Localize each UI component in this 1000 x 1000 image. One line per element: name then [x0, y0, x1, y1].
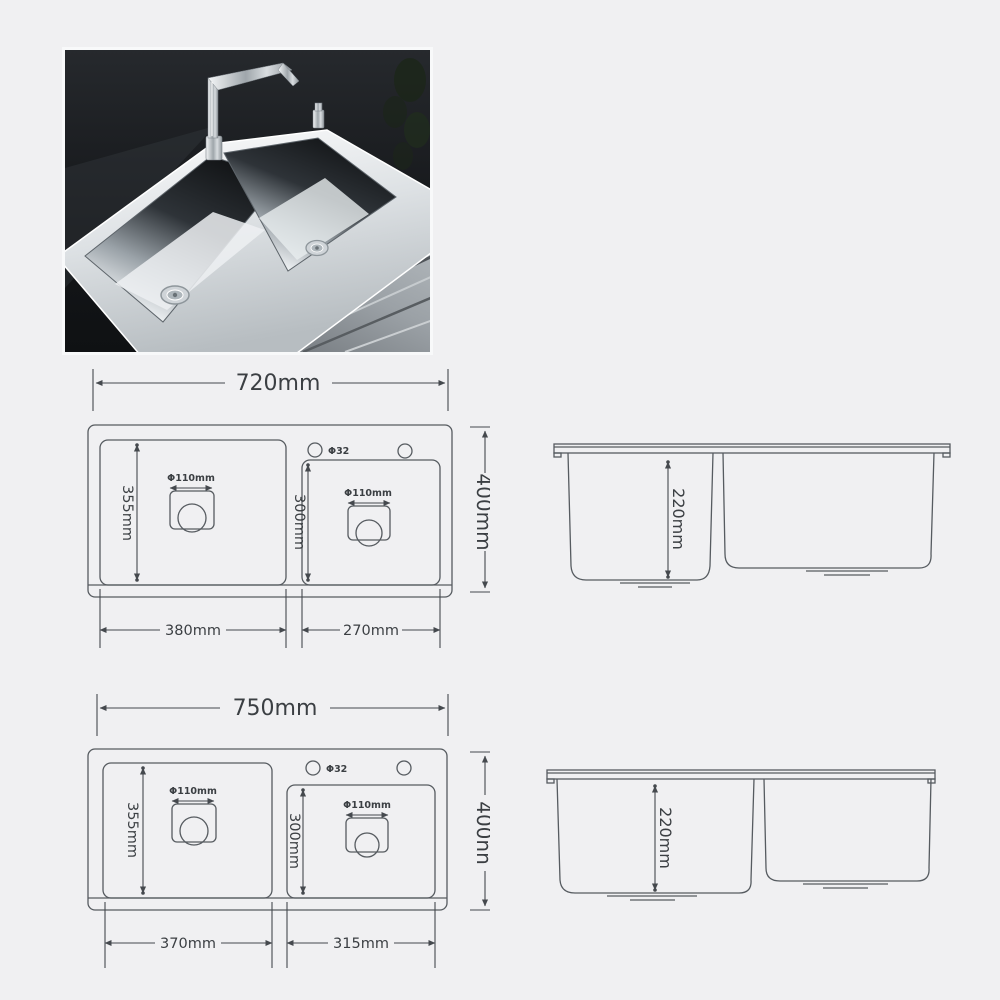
right-drain-symbol: Φ110mm — [343, 800, 391, 857]
rim-lip-right — [943, 453, 950, 457]
left-drain-symbol: Φ110mm — [169, 786, 217, 845]
overall-depth-label: 400nn — [472, 801, 490, 865]
side-outline-720 — [554, 444, 950, 587]
dim-overall-width: 750mm — [97, 694, 448, 736]
left-bowl-width-label: 370mm — [160, 936, 216, 952]
right-bowl-length-label: 300mm — [291, 494, 307, 550]
product-dimension-sheet: 720mm Φ32 355mm Φ110mm 300mm — [0, 0, 1000, 1000]
right-bowl-section — [764, 779, 931, 881]
right-drain-symbol: Φ110mm — [344, 488, 392, 546]
dim-left-bowl-length: 355mm — [119, 443, 139, 582]
right-drain-label: Φ110mm — [343, 800, 391, 811]
right-bowl-width-label: 315mm — [333, 936, 389, 952]
top-view-diagram-750: 750mm Φ32 355mm Φ110mm 300mm — [60, 690, 490, 990]
faucet-hole-right — [397, 761, 411, 775]
faucet-hole-left — [308, 443, 322, 457]
rim-lip-left — [554, 453, 561, 457]
dim-bowl-depth: 220mm — [653, 784, 675, 892]
top-view-diagram-720: 720mm Φ32 355mm Φ110mm 300mm — [60, 365, 490, 655]
faucet-hole-label: Φ32 — [326, 764, 347, 775]
dim-right-bowl-length: 300mm — [291, 463, 310, 582]
left-bowl-length-label: 355mm — [119, 485, 135, 541]
faucet-hole-left — [306, 761, 320, 775]
dim-bowl-widths: 380mm 270mm — [100, 589, 440, 648]
left-drain-label: Φ110mm — [167, 473, 215, 484]
side-view-diagram-720: 220mm — [540, 430, 960, 605]
sink-outline-720: Φ32 — [88, 425, 452, 597]
left-bowl-section — [568, 453, 713, 580]
left-drain — [161, 286, 189, 304]
dim-bowl-widths: 370mm 315mm — [105, 902, 435, 968]
overall-width-label: 720mm — [236, 371, 321, 396]
faucet-hole-right — [398, 444, 412, 458]
dim-left-bowl-length: 355mm — [124, 766, 145, 895]
left-drain-symbol: Φ110mm — [167, 473, 215, 532]
dim-overall-depth: 400nn — [470, 752, 490, 910]
sink-outline-750: Φ32 — [88, 749, 447, 910]
rim-lip-left — [547, 779, 554, 783]
left-drain-label: Φ110mm — [169, 786, 217, 797]
side-view-diagram-750: 220mm — [540, 750, 960, 935]
right-bowl-section — [723, 453, 934, 568]
left-bowl-width-label: 380mm — [165, 623, 221, 639]
right-drain-label: Φ110mm — [344, 488, 392, 499]
overall-depth-label: 400mm — [472, 473, 490, 550]
right-bowl-outline — [302, 460, 440, 585]
dim-bowl-depth: 220mm — [666, 460, 688, 579]
left-bowl-length-label: 355mm — [124, 802, 140, 858]
overall-width-label: 750mm — [233, 696, 318, 721]
side-outline-750 — [547, 770, 935, 900]
dim-overall-width: 720mm — [93, 369, 448, 411]
dim-right-bowl-length: 300mm — [286, 788, 305, 895]
right-drain — [306, 241, 328, 256]
bowl-depth-label: 220mm — [669, 488, 688, 550]
right-bowl-length-label: 300mm — [286, 813, 302, 869]
right-bowl-width-label: 270mm — [343, 623, 399, 639]
faucet-hole-label: Φ32 — [328, 446, 349, 457]
dim-overall-depth: 400mm — [470, 427, 490, 592]
sink-product-photo — [65, 50, 430, 352]
bowl-depth-label: 220mm — [656, 807, 675, 869]
